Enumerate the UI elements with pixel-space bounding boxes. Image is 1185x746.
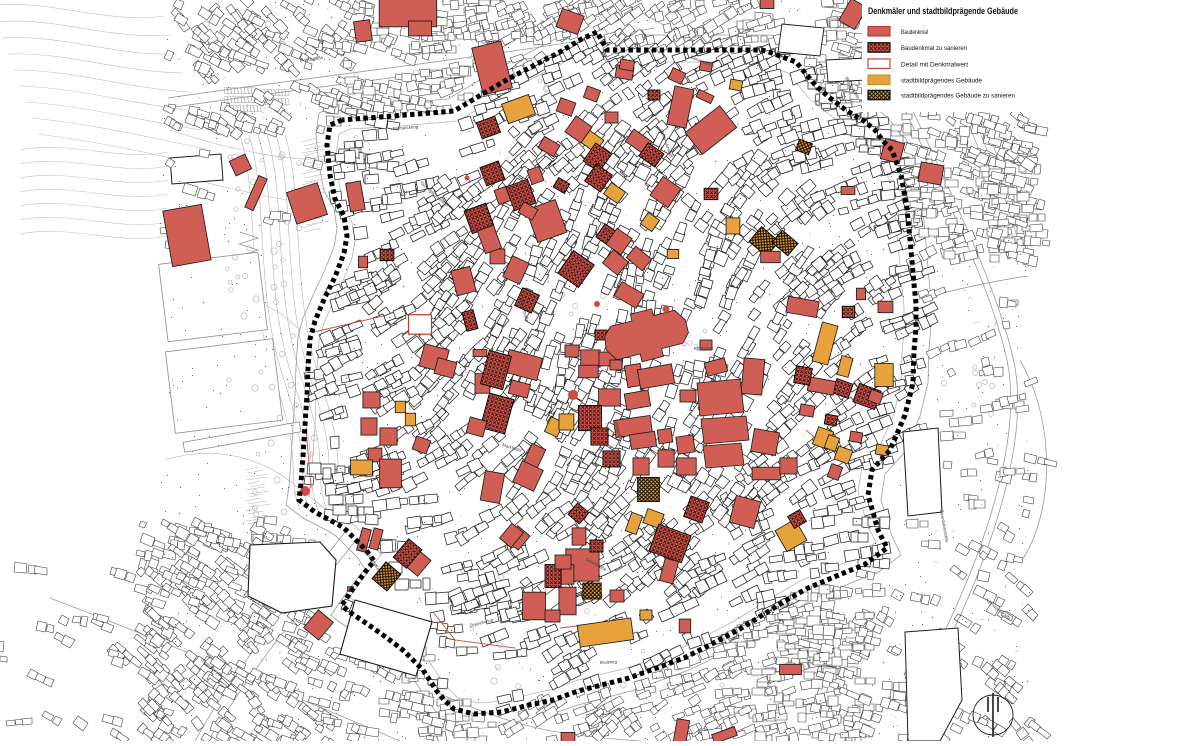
- svg-text:Braitweg: Braitweg: [600, 659, 618, 665]
- svg-text:Baudenkmal zu sanieren: Baudenkmal zu sanieren: [901, 45, 967, 52]
- svg-text:Denkmäler und stadtbildprägend: Denkmäler und stadtbildprägende Gebäude: [868, 6, 1018, 17]
- svg-text:Detail mit Denkmalwert: Detail mit Denkmalwert: [901, 61, 968, 68]
- svg-text:Baudenkmal: Baudenkmal: [901, 29, 928, 36]
- svg-text:Kirchplatz: Kirchplatz: [694, 346, 713, 351]
- svg-text:stadtbildprägendes Gebäude zu: stadtbildprägendes Gebäude zu sanieren: [901, 93, 1015, 100]
- svg-text:stadtbildprägendes Gebäude: stadtbildprägendes Gebäude: [901, 78, 982, 85]
